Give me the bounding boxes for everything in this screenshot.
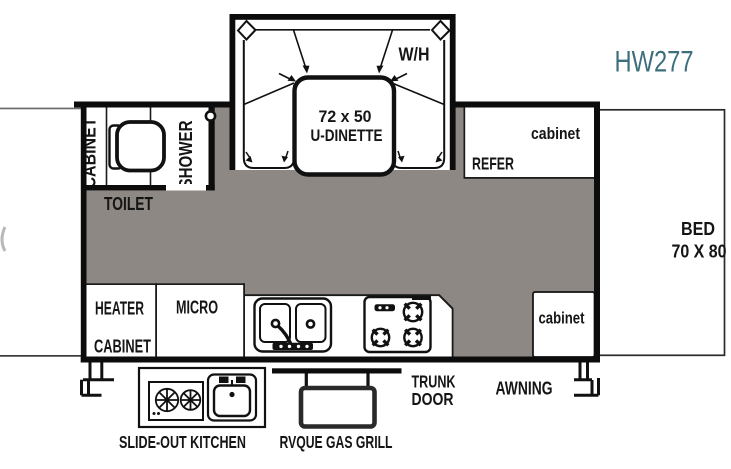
svg-text:REFER: REFER (472, 154, 514, 174)
svg-text:SLIDE-OUT KITCHEN: SLIDE-OUT KITCHEN (119, 432, 246, 452)
svg-text:U-DINETTE: U-DINETTE (311, 126, 383, 145)
svg-text:HW277: HW277 (615, 46, 694, 79)
svg-text:RVQUE GAS GRILL: RVQUE GAS GRILL (280, 432, 393, 452)
svg-text:70 X 80: 70 X 80 (672, 242, 727, 262)
svg-text:SHOWER: SHOWER (176, 120, 196, 188)
svg-text:cabinet: cabinet (531, 124, 580, 143)
svg-text:72 x 50: 72 x 50 (319, 107, 372, 126)
svg-text:TOILET: TOILET (104, 194, 153, 214)
svg-text:MICRO: MICRO (176, 298, 218, 318)
svg-text:AWNING: AWNING (496, 379, 553, 399)
svg-text:HEATER: HEATER (95, 299, 144, 319)
svg-text:BED: BED (681, 219, 715, 239)
svg-text:CABINET: CABINET (94, 337, 151, 357)
svg-text:W/H: W/H (399, 44, 430, 65)
svg-text:DOOR: DOOR (412, 389, 454, 409)
svg-text:cabinet: cabinet (539, 309, 585, 328)
